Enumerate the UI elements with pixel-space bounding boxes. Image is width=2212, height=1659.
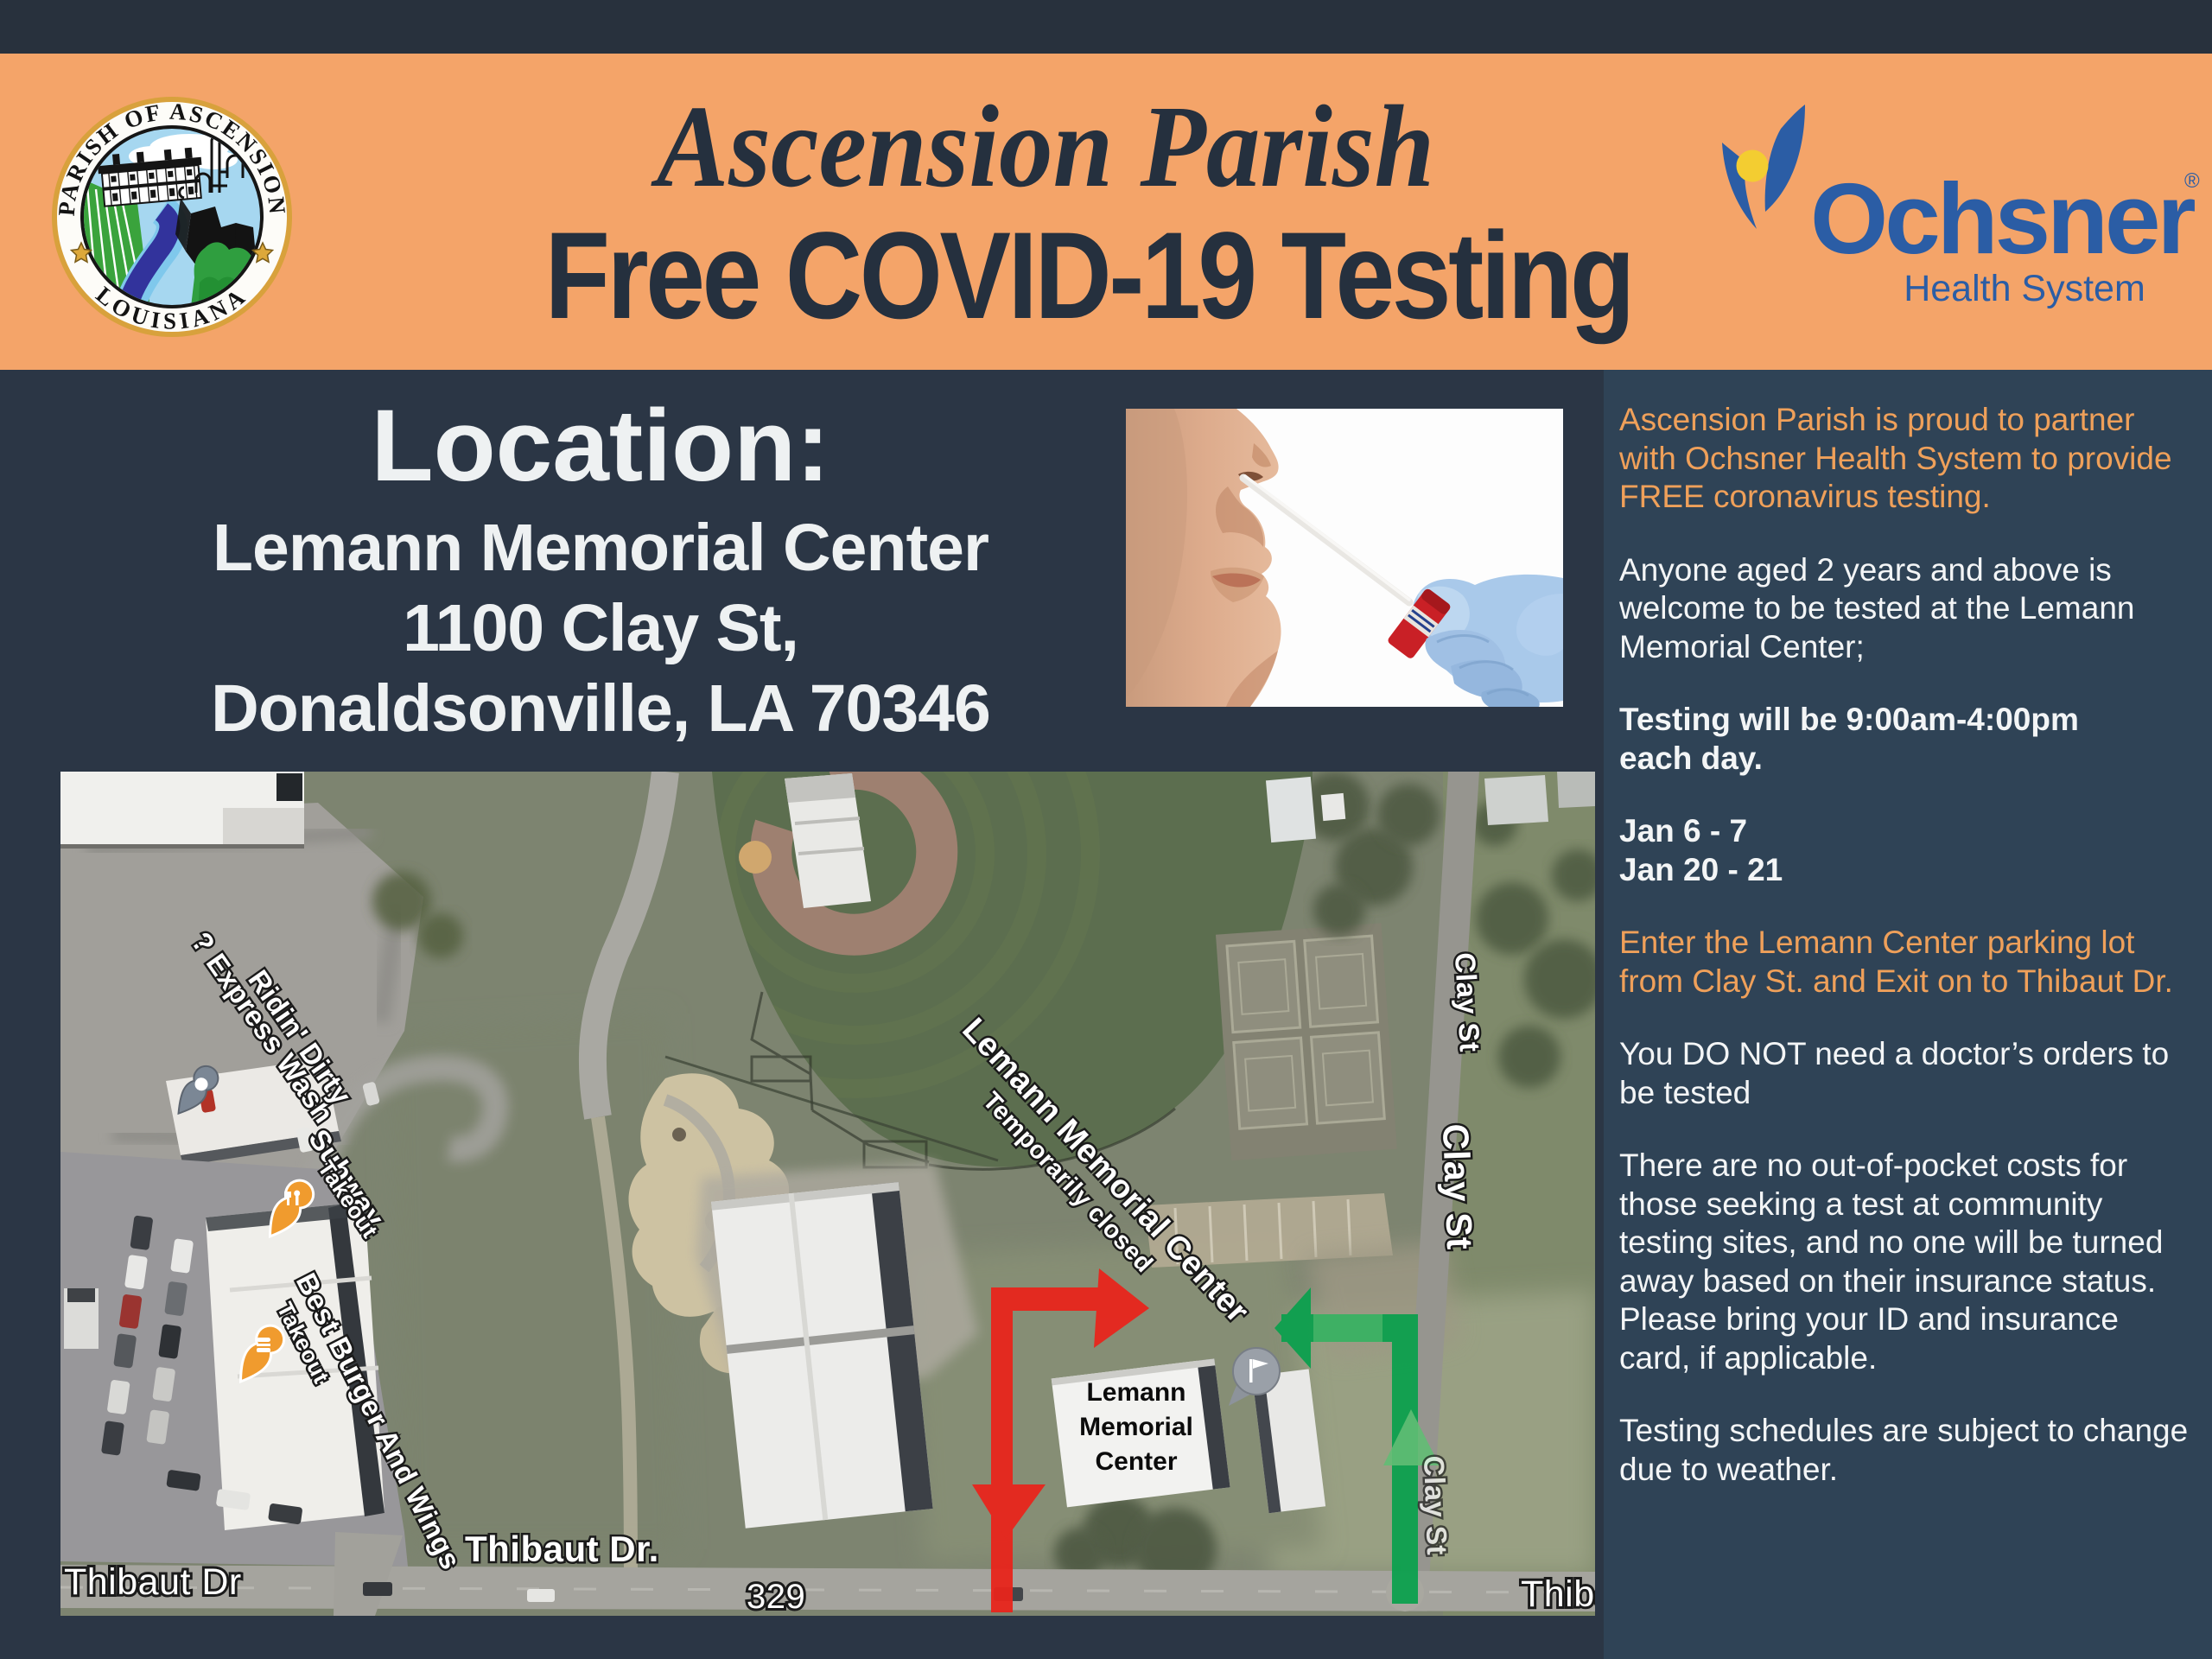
svg-text:329: 329 [747,1578,805,1616]
svg-text:Clay St: Clay St [1418,1455,1453,1556]
svg-text:Thibaut D: Thibaut D [1521,1573,1595,1615]
svg-text:Lemann: Lemann [1086,1378,1185,1407]
svg-text:Thibaut Dr: Thibaut Dr [64,1561,242,1603]
svg-text:Ochsner: Ochsner [1810,162,2195,275]
svg-text:Thibaut Dr.: Thibaut Dr. [465,1529,659,1569]
svg-text:®: ® [2184,169,2200,193]
svg-text:Memorial: Memorial [1079,1413,1193,1441]
svg-text:Clay St: Clay St [1449,951,1486,1052]
svg-text:Clay St: Clay St [1435,1123,1480,1250]
svg-text:Center: Center [1095,1447,1177,1476]
svg-text:Health System: Health System [1904,268,2145,309]
